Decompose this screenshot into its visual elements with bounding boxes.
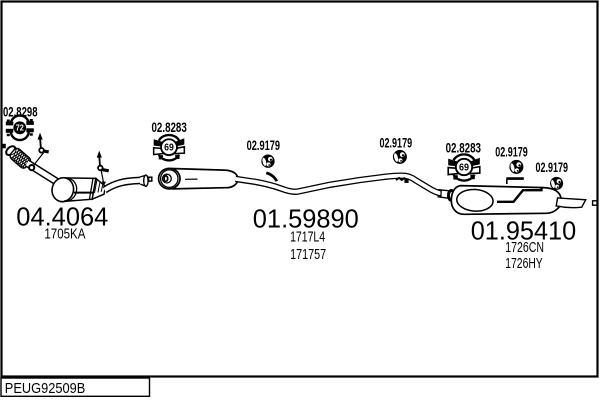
- svg-text:72: 72: [16, 124, 24, 133]
- svg-text:02.8283: 02.8283: [152, 119, 187, 135]
- svg-text:02.8283: 02.8283: [446, 139, 482, 155]
- svg-text:02.9179: 02.9179: [536, 159, 569, 175]
- svg-text:1705KA: 1705KA: [44, 226, 85, 242]
- svg-text:1726CN: 1726CN: [505, 240, 544, 256]
- svg-text:02.9179: 02.9179: [380, 134, 413, 150]
- svg-text:1726HY: 1726HY: [505, 256, 543, 272]
- svg-text:171757: 171757: [290, 247, 326, 263]
- svg-text:02.9179: 02.9179: [495, 144, 528, 160]
- svg-text:PEUG92509B: PEUG92509B: [5, 380, 86, 397]
- svg-text:02.8298: 02.8298: [3, 104, 38, 120]
- svg-text:1717L4: 1717L4: [290, 230, 325, 246]
- svg-text:02.9179: 02.9179: [247, 137, 281, 153]
